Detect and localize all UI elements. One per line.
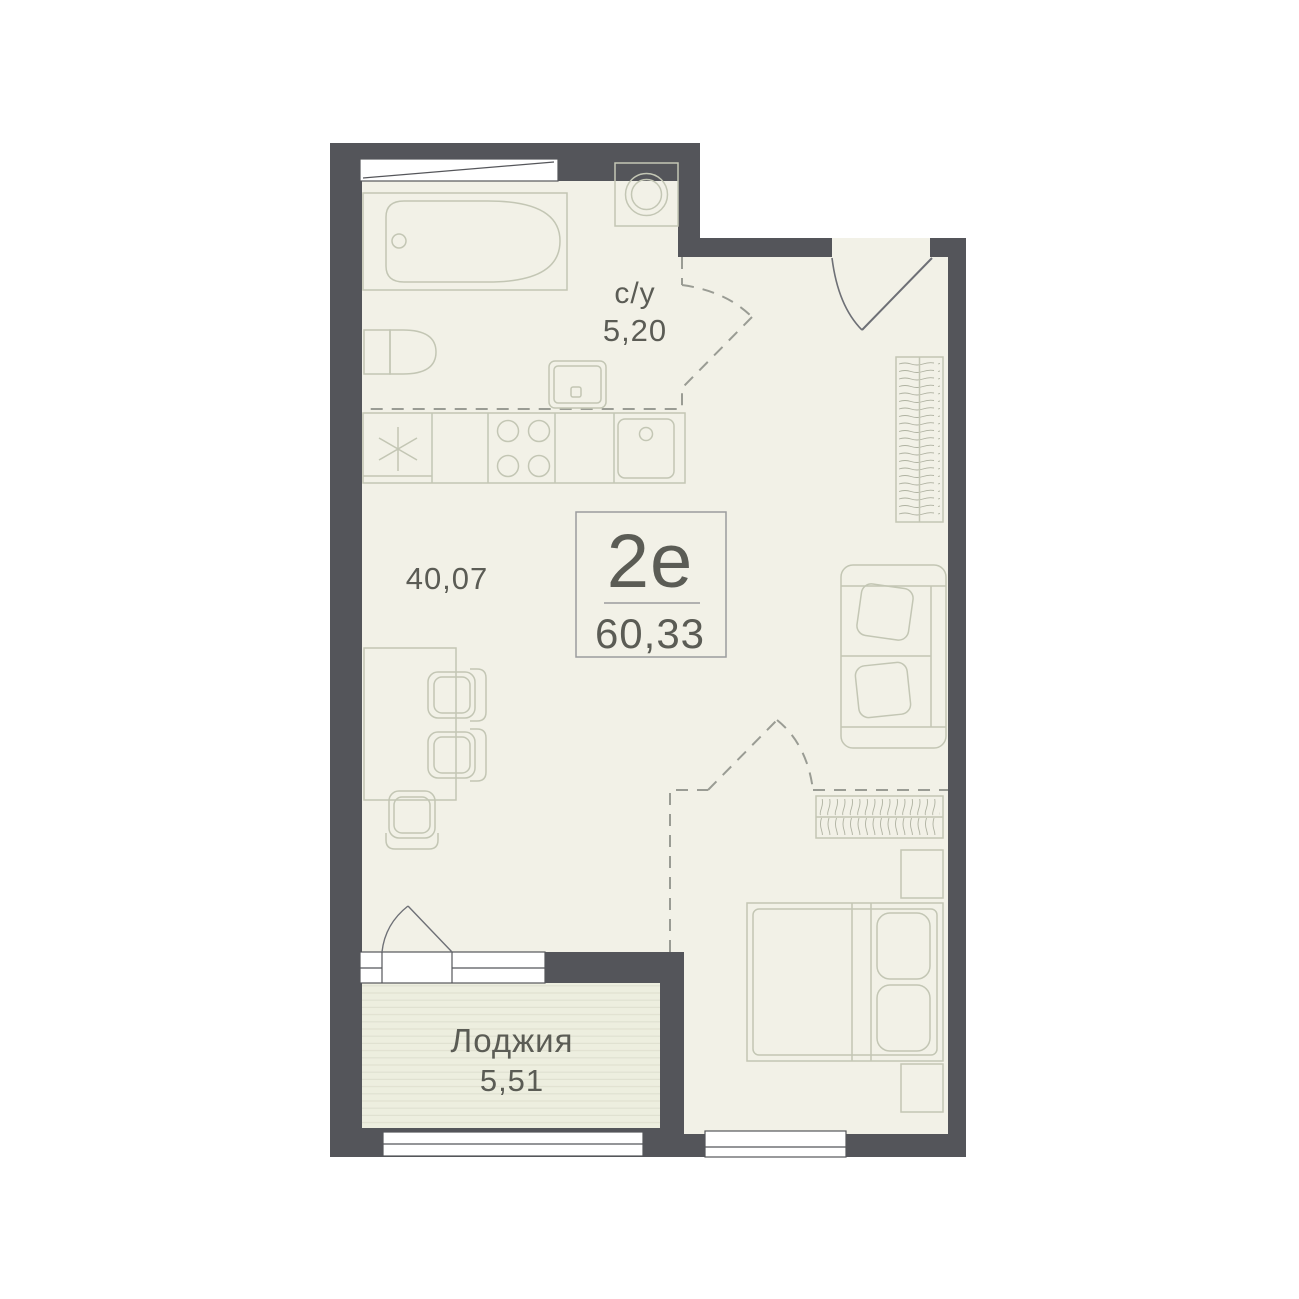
wall-entry-left (678, 238, 832, 257)
wall-balcony-segment (545, 952, 684, 983)
top-window (360, 159, 558, 181)
wall-right (948, 238, 966, 1157)
bedroom-window (705, 1131, 846, 1157)
floor-plan: с/у 5,20 40,07 Лоджия 5,51 2е 60,33 (0, 0, 1299, 1299)
wardrobe-horizontal (816, 796, 943, 838)
balcony-door-window (360, 952, 545, 983)
wall-left (330, 143, 362, 1157)
wardrobe-vertical (896, 357, 943, 522)
loggia-label: Лоджия (451, 1022, 574, 1059)
floor-plan-svg: с/у 5,20 40,07 Лоджия 5,51 2е 60,33 (0, 0, 1299, 1299)
loggia-area: 5,51 (480, 1063, 544, 1098)
loggia-window (383, 1132, 643, 1156)
bathroom-area: 5,20 (603, 313, 667, 348)
bathroom-label: с/у (614, 277, 655, 310)
apartment-type: 2е (607, 519, 694, 604)
main-room-area: 40,07 (406, 561, 489, 596)
apartment-total-area: 60,33 (595, 610, 705, 657)
